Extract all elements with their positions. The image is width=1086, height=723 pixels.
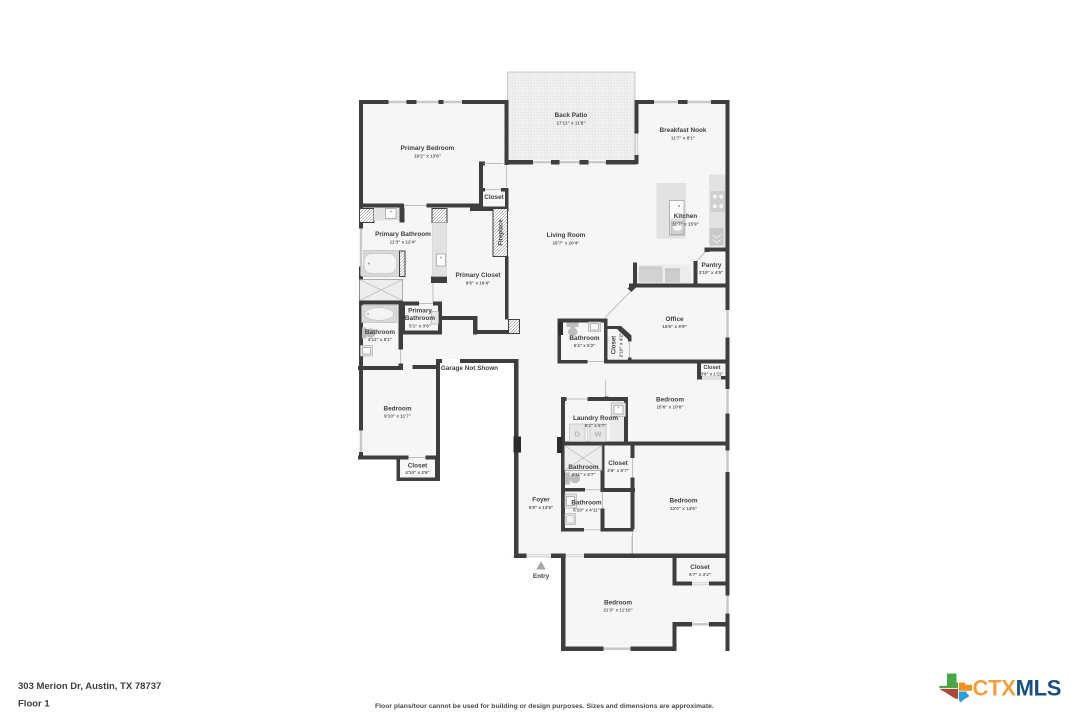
svg-text:Fireplace: Fireplace — [499, 219, 505, 246]
svg-text:15'6" x 9'9": 15'6" x 9'9" — [662, 324, 686, 329]
svg-text:3'6" x 1'11": 3'6" x 1'11" — [701, 372, 724, 377]
svg-text:11'3" x 12'4": 11'3" x 12'4" — [390, 240, 417, 245]
svg-text:Pantry: Pantry — [702, 262, 722, 269]
svg-text:4'10" x 2'6": 4'10" x 2'6" — [405, 470, 429, 475]
svg-text:D: D — [574, 430, 580, 439]
svg-text:Living Room: Living Room — [547, 232, 586, 239]
svg-text:Foyer: Foyer — [532, 497, 550, 504]
svg-text:W: W — [594, 430, 602, 439]
svg-text:5'10" x 4'11": 5'10" x 4'11" — [573, 508, 600, 513]
svg-text:6'7" x 3'2": 6'7" x 3'2" — [689, 572, 711, 577]
svg-text:Primary Closet: Primary Closet — [455, 272, 501, 279]
svg-text:4'11" x 8'1": 4'11" x 8'1" — [368, 337, 392, 342]
svg-text:Kitchen: Kitchen — [674, 213, 698, 220]
svg-text:Bathroom: Bathroom — [365, 329, 395, 336]
svg-text:4'11" x 5'7": 4'11" x 5'7" — [571, 472, 595, 477]
svg-text:Laundry Room: Laundry Room — [573, 415, 618, 422]
svg-text:Bedroom: Bedroom — [604, 600, 632, 607]
svg-text:Back Patio: Back Patio — [555, 112, 588, 119]
svg-text:19'2" x 13'6": 19'2" x 13'6" — [414, 154, 441, 159]
svg-text:15'6" x 10'6": 15'6" x 10'6" — [657, 405, 684, 410]
svg-text:12'0" x 14'5": 12'0" x 14'5" — [670, 506, 697, 511]
svg-text:9'6" x 16'4": 9'6" x 16'4" — [466, 281, 490, 286]
svg-text:Entry: Entry — [533, 573, 550, 580]
svg-text:CTXMLS: CTXMLS — [973, 676, 1062, 701]
svg-text:2'10" x 4'2": 2'10" x 4'2" — [619, 333, 624, 357]
svg-text:Bedroom: Bedroom — [669, 498, 697, 505]
svg-text:16'7" x 20'4": 16'7" x 20'4" — [553, 241, 580, 246]
svg-text:Garage Not Shown: Garage Not Shown — [441, 365, 498, 372]
svg-text:8'2" x 5'7": 8'2" x 5'7" — [585, 423, 607, 428]
svg-text:Closet: Closet — [608, 460, 628, 467]
svg-text:5'4" x 5'2": 5'4" x 5'2" — [574, 343, 596, 348]
svg-text:11'7" x 8'1": 11'7" x 8'1" — [671, 136, 695, 141]
svg-text:Bathroom: Bathroom — [569, 335, 599, 342]
svg-text:3'6" x 5'7": 3'6" x 5'7" — [607, 468, 629, 473]
svg-text:Floor 1: Floor 1 — [18, 699, 50, 710]
svg-text:5'1" x 3'6": 5'1" x 3'6" — [409, 324, 431, 329]
svg-text:Bedroom: Bedroom — [656, 397, 684, 404]
svg-text:Closet: Closet — [690, 564, 710, 571]
svg-text:9'10" x 11'7": 9'10" x 11'7" — [384, 414, 411, 419]
svg-text:11'7" x 15'9": 11'7" x 15'9" — [672, 222, 699, 227]
svg-text:17'11" x 11'8": 17'11" x 11'8" — [556, 121, 585, 126]
svg-text:Floor plans/tour cannot be use: Floor plans/tour cannot be used for buil… — [375, 703, 714, 710]
svg-text:Closet: Closet — [484, 194, 504, 201]
svg-text:303 Merion Dr, Austin, TX 7873: 303 Merion Dr, Austin, TX 78737 — [18, 681, 161, 692]
svg-text:3'10" x 4'5": 3'10" x 4'5" — [699, 270, 723, 275]
svg-text:Bathroom: Bathroom — [571, 500, 601, 507]
svg-text:Closet: Closet — [408, 463, 428, 470]
svg-text:5'9" x 13'6": 5'9" x 13'6" — [529, 505, 553, 510]
svg-text:Closet: Closet — [612, 336, 618, 354]
svg-text:21'3" x 11'10": 21'3" x 11'10" — [603, 608, 632, 613]
svg-text:Closet: Closet — [703, 365, 720, 371]
svg-text:Bathroom: Bathroom — [405, 315, 435, 322]
svg-text:Bathroom: Bathroom — [568, 464, 598, 471]
svg-text:Primary Bathroom: Primary Bathroom — [375, 231, 431, 238]
svg-text:Office: Office — [665, 316, 684, 323]
svg-text:Primary: Primary — [408, 308, 432, 315]
svg-text:Bedroom: Bedroom — [383, 406, 411, 413]
svg-text:Breakfast Nook: Breakfast Nook — [660, 127, 707, 134]
svg-text:Primary Bedroom: Primary Bedroom — [401, 145, 455, 152]
